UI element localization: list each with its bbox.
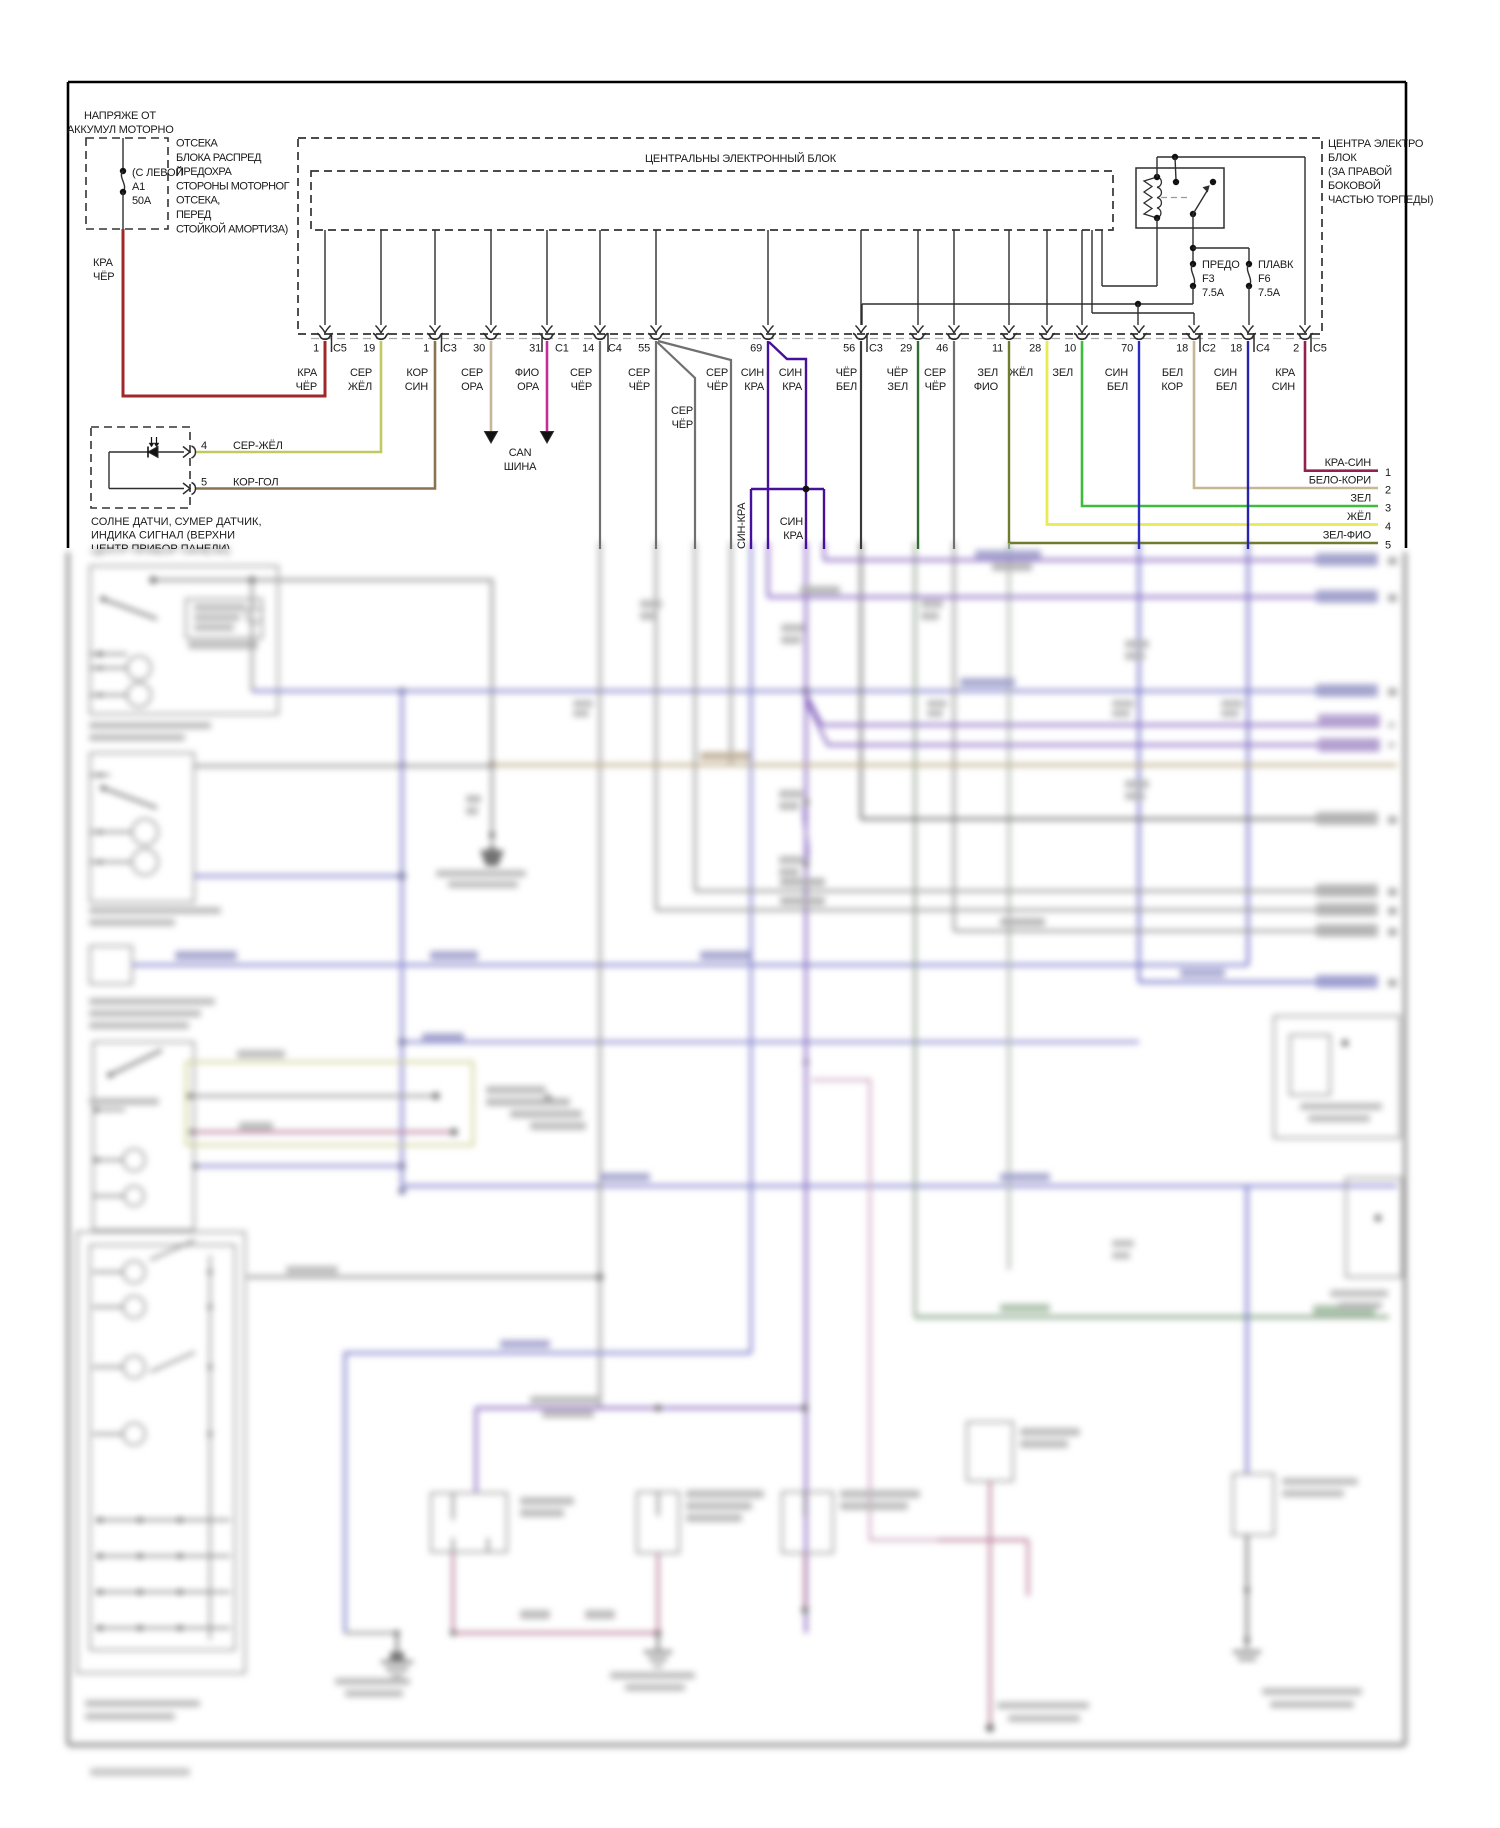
svg-text:СЕР: СЕР <box>671 405 693 417</box>
svg-text:7.5А: 7.5А <box>1258 287 1281 299</box>
svg-text:КОР-ГОЛ: КОР-ГОЛ <box>233 477 278 489</box>
svg-text:4: 4 <box>1385 521 1391 533</box>
svg-text:14: 14 <box>582 343 594 355</box>
svg-text:5: 5 <box>201 477 207 489</box>
svg-text:70: 70 <box>1121 343 1133 355</box>
svg-text:БЕЛО-КОРИ: БЕЛО-КОРИ <box>1309 475 1371 487</box>
svg-text:СИН: СИН <box>741 367 764 379</box>
svg-text:БЛОКА РАСПРЕД: БЛОКА РАСПРЕД <box>176 152 262 164</box>
svg-text:10: 10 <box>1064 343 1076 355</box>
svg-text:28: 28 <box>1029 343 1041 355</box>
svg-text:БЕЛ: БЕЛ <box>1162 367 1183 379</box>
svg-text:C3: C3 <box>443 343 457 355</box>
svg-text:СИН: СИН <box>1272 381 1295 393</box>
svg-text:ЧЁР: ЧЁР <box>571 381 592 393</box>
svg-text:ОРА: ОРА <box>517 381 540 393</box>
svg-text:ЧЁР: ЧЁР <box>296 381 317 393</box>
svg-text:БОКОВОЙ: БОКОВОЙ <box>1328 179 1381 192</box>
svg-text:46: 46 <box>936 343 948 355</box>
svg-text:ШИНА: ШИНА <box>504 461 537 473</box>
svg-text:ФИО: ФИО <box>515 367 540 379</box>
svg-text:БЕЛ: БЕЛ <box>836 381 857 393</box>
svg-text:СИН: СИН <box>1214 367 1237 379</box>
svg-text:А1: А1 <box>132 181 145 193</box>
svg-text:ЧЁР: ЧЁР <box>93 271 114 283</box>
svg-text:(ЗА ПРАВОЙ: (ЗА ПРАВОЙ <box>1328 165 1392 178</box>
svg-text:СЕР: СЕР <box>924 367 946 379</box>
svg-text:ЖЁЛ: ЖЁЛ <box>1347 511 1371 523</box>
svg-text:C4: C4 <box>1256 343 1270 355</box>
svg-text:29: 29 <box>900 343 912 355</box>
svg-text:СТОЙКОЙ АМОРТИЗА): СТОЙКОЙ АМОРТИЗА) <box>176 222 288 235</box>
svg-text:ЧЁР: ЧЁР <box>629 381 650 393</box>
svg-text:СИН: СИН <box>779 367 802 379</box>
svg-text:ЧЁР: ЧЁР <box>887 367 908 379</box>
svg-text:КРА: КРА <box>1275 367 1296 379</box>
svg-text:ОТСЕКА,: ОТСЕКА, <box>176 195 220 207</box>
svg-text:ИНДИКА СИГНАЛ (ВЕРХНИ: ИНДИКА СИГНАЛ (ВЕРХНИ <box>91 529 235 541</box>
svg-text:18: 18 <box>1230 343 1242 355</box>
svg-text:СИН: СИН <box>780 516 803 528</box>
svg-text:3: 3 <box>1385 503 1391 515</box>
svg-text:2: 2 <box>1385 485 1391 497</box>
svg-text:1: 1 <box>313 343 319 355</box>
svg-text:КРА: КРА <box>783 530 804 542</box>
svg-text:C5: C5 <box>1313 343 1327 355</box>
svg-text:СИН-КРА: СИН-КРА <box>736 502 748 549</box>
svg-text:КОР: КОР <box>1161 381 1183 393</box>
svg-text:НАПРЯЖЕ ОТ: НАПРЯЖЕ ОТ <box>84 110 156 122</box>
svg-text:ЧЁР: ЧЁР <box>672 419 693 431</box>
svg-text:ЗЕЛ: ЗЕЛ <box>1350 493 1371 505</box>
svg-text:31: 31 <box>529 343 541 355</box>
svg-text:55: 55 <box>638 343 650 355</box>
svg-text:18: 18 <box>1176 343 1188 355</box>
svg-text:ПРЕДОХРА: ПРЕДОХРА <box>176 166 233 178</box>
svg-text:2: 2 <box>1293 343 1299 355</box>
svg-text:АККУМУЛ МОТОРНО: АККУМУЛ МОТОРНО <box>67 124 174 136</box>
svg-text:19: 19 <box>363 343 375 355</box>
svg-text:7.5А: 7.5А <box>1202 287 1225 299</box>
svg-text:1: 1 <box>423 343 429 355</box>
svg-text:ОТСЕКА: ОТСЕКА <box>176 138 218 150</box>
svg-text:КРА: КРА <box>782 381 803 393</box>
svg-text:СЕР: СЕР <box>628 367 650 379</box>
svg-text:ЗЕЛ-ФИО: ЗЕЛ-ФИО <box>1323 530 1372 542</box>
svg-text:ЦЕНТРА ЭЛЕКТРО: ЦЕНТРА ЭЛЕКТРО <box>1328 138 1424 150</box>
svg-text:СИН: СИН <box>1105 367 1128 379</box>
svg-text:СЕР: СЕР <box>570 367 592 379</box>
svg-text:C4: C4 <box>608 343 622 355</box>
svg-text:ЧЁР: ЧЁР <box>925 381 946 393</box>
svg-text:ЖЁЛ: ЖЁЛ <box>1009 367 1033 379</box>
svg-text:КРА: КРА <box>744 381 765 393</box>
svg-text:F6: F6 <box>1258 273 1271 285</box>
svg-text:СИН: СИН <box>405 381 428 393</box>
svg-text:КРА: КРА <box>93 257 114 269</box>
svg-text:69: 69 <box>750 343 762 355</box>
svg-text:СОЛНЕ ДАТЧИ, СУМЕР ДАТЧИК,: СОЛНЕ ДАТЧИ, СУМЕР ДАТЧИК, <box>91 516 262 528</box>
svg-text:ФИО: ФИО <box>974 381 999 393</box>
svg-text:ОРА: ОРА <box>461 381 484 393</box>
svg-text:ЧЁР: ЧЁР <box>836 367 857 379</box>
svg-text:56: 56 <box>843 343 855 355</box>
svg-text:ЖЁЛ: ЖЁЛ <box>348 381 372 393</box>
svg-text:11: 11 <box>992 343 1003 355</box>
svg-text:CAN: CAN <box>509 447 532 459</box>
svg-text:C1: C1 <box>555 343 569 355</box>
svg-text:C3: C3 <box>869 343 883 355</box>
svg-text:СТОРОНЫ МОТОРНОГ: СТОРОНЫ МОТОРНОГ <box>176 180 290 192</box>
svg-text:ЗЕЛ: ЗЕЛ <box>1052 367 1073 379</box>
svg-text:СЕР: СЕР <box>461 367 483 379</box>
svg-text:C5: C5 <box>333 343 347 355</box>
svg-text:50А: 50А <box>132 195 152 207</box>
svg-text:СЕР-ЖЁЛ: СЕР-ЖЁЛ <box>233 440 283 452</box>
svg-text:F3: F3 <box>1202 273 1215 285</box>
svg-text:КРА-СИН: КРА-СИН <box>1325 457 1372 469</box>
svg-text:БЕЛ: БЕЛ <box>1107 381 1128 393</box>
svg-text:ПЛАВК: ПЛАВК <box>1258 259 1294 271</box>
svg-text:БЛОК: БЛОК <box>1328 152 1357 164</box>
svg-text:ПЕРЕД: ПЕРЕД <box>176 209 212 221</box>
svg-text:ЦЕНТРАЛЬНЫ ЭЛЕКТРОННЫЙ БЛОК: ЦЕНТРАЛЬНЫ ЭЛЕКТРОННЫЙ БЛОК <box>645 152 837 165</box>
svg-text:4: 4 <box>201 440 207 452</box>
svg-text:ЗЕЛ: ЗЕЛ <box>887 381 908 393</box>
svg-text:30: 30 <box>473 343 485 355</box>
svg-text:СЕР: СЕР <box>706 367 728 379</box>
svg-text:СЕР: СЕР <box>350 367 372 379</box>
svg-text:КОР: КОР <box>406 367 428 379</box>
svg-text:ЧЁР: ЧЁР <box>707 381 728 393</box>
svg-text:ЧАСТЬЮ ТОРПЕДЫ): ЧАСТЬЮ ТОРПЕДЫ) <box>1328 194 1433 206</box>
svg-text:КРА: КРА <box>297 367 318 379</box>
svg-text:БЕЛ: БЕЛ <box>1216 381 1237 393</box>
svg-text:C2: C2 <box>1202 343 1216 355</box>
svg-text:ПРЕДО: ПРЕДО <box>1202 259 1240 271</box>
svg-text:ЗЕЛ: ЗЕЛ <box>977 367 998 379</box>
svg-text:1: 1 <box>1385 467 1391 479</box>
